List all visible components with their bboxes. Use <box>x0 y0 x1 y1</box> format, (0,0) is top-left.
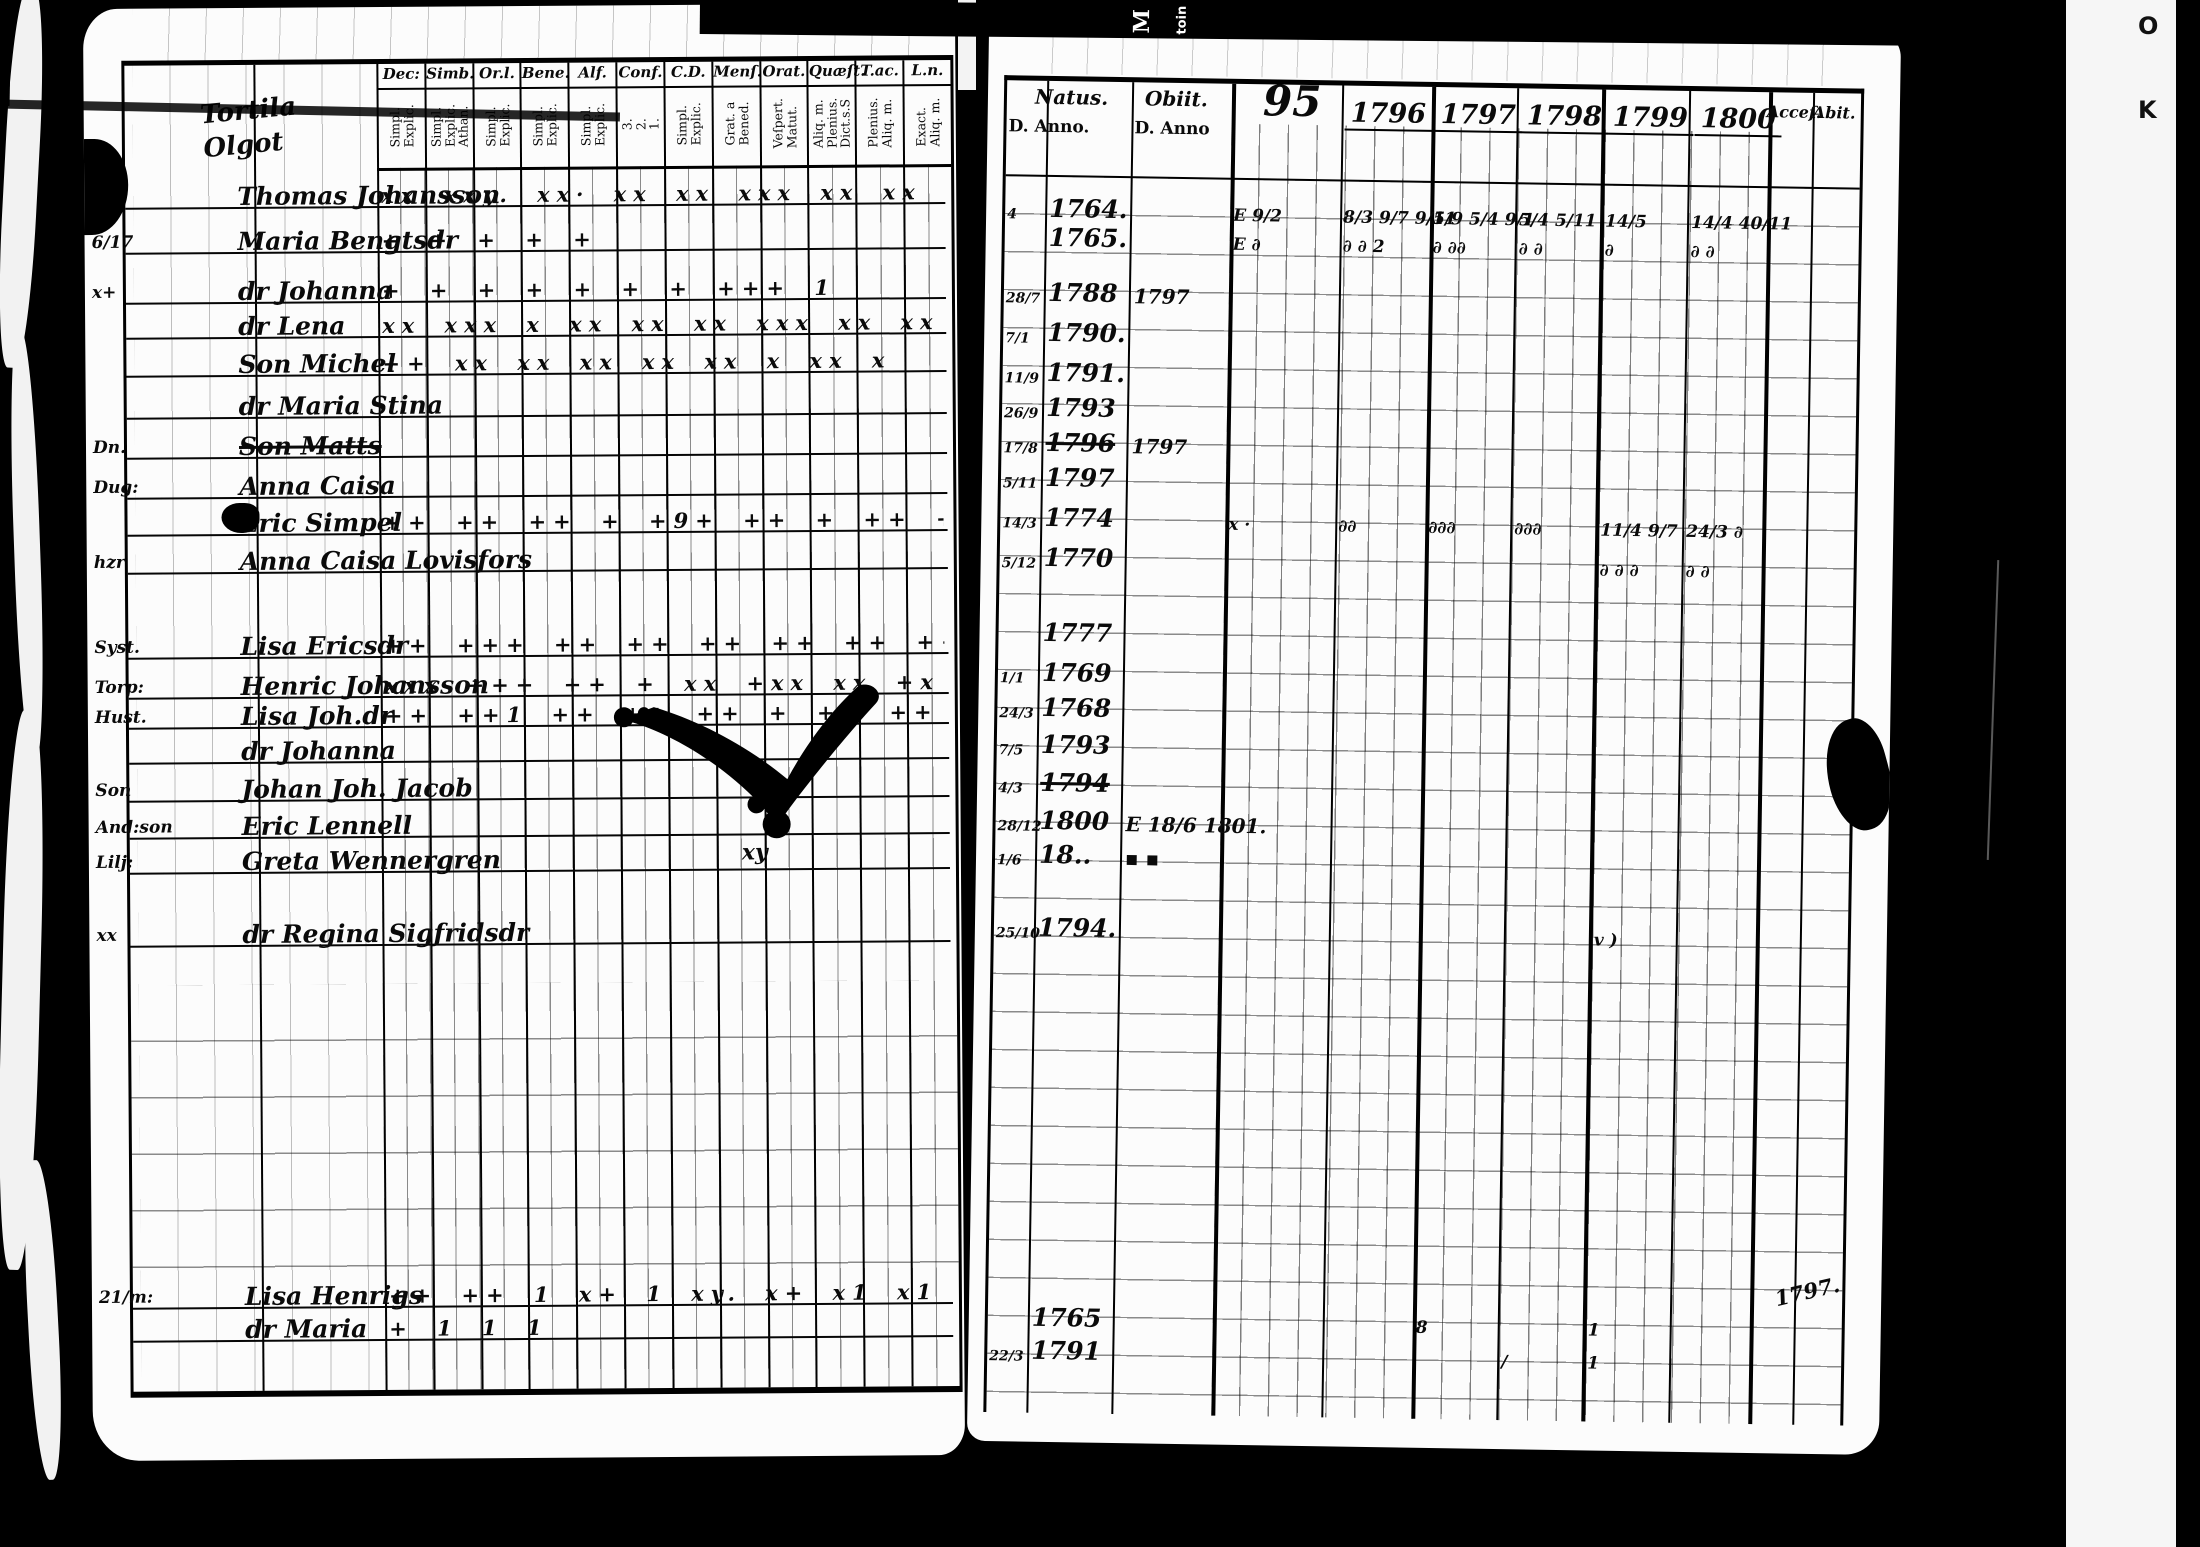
column-sublabels: Veſpert. Matut. <box>771 98 798 148</box>
column-label: C.D. <box>665 63 711 81</box>
birth-day: 11/9 <box>1004 370 1039 387</box>
examination-marks: + + + + + + + +++ 1 <box>382 274 942 303</box>
communion-1799: ∂ ∂ ∂ <box>1599 561 1638 582</box>
margin-annotation: xx <box>96 926 116 946</box>
margin-annotation: Son <box>95 781 131 801</box>
column-label: Bene. <box>522 64 568 82</box>
year-headers: 9517961797179817991800 <box>1006 80 1861 149</box>
communion-1797: ∂∂∂ <box>1428 518 1456 538</box>
column-label: T.ac. <box>857 61 903 79</box>
dates-table: Natus. Obiit. D. Anno. D. Anno 951796179… <box>983 75 1864 1425</box>
register-row: Thomas Johansson xx xxy. xx· xx xx xxx x… <box>125 172 945 210</box>
year-header: 1798 <box>1520 100 1608 134</box>
person-name: Lisa Ericsdr <box>240 631 408 661</box>
examination-marks: xx xxy. xx· xx xx xxx xx xx xx xy. xx xI <box>381 179 941 208</box>
death-note: 1797 <box>1134 284 1190 309</box>
birth-year: 1765 <box>1032 1303 1102 1333</box>
birth-year: 1777 <box>1042 618 1112 648</box>
communion-1796: ∂∂ <box>1338 516 1356 536</box>
person-name: Eric Simpel <box>239 508 402 538</box>
person-name: Lisa Joh.dr <box>241 701 393 731</box>
column-label: Simb. <box>426 64 472 82</box>
film-edge-strip: O K <box>2066 0 2176 1547</box>
birth-year: 1800 <box>1039 806 1109 836</box>
birth-year: 1794. <box>1038 913 1117 943</box>
death-note: E 18/6 1801. <box>1125 812 1266 838</box>
margin-annotation: Hust. <box>95 708 147 728</box>
death-note: ▪ ▪ <box>1125 846 1159 871</box>
birth-day: 7/5 <box>999 742 1024 758</box>
person-name: dr Regina Sigfridsdr <box>242 918 529 949</box>
examination-marks: ++ xx xx xx xx xx x xx x <box>382 347 942 376</box>
register-row: hzr Anna Caisa Lovisfors <box>128 537 948 575</box>
birth-day: 7/1 <box>1005 330 1030 346</box>
large-ink-checkmark-blot <box>608 665 919 867</box>
birth-day: 28/12 <box>997 818 1041 835</box>
right-page: Natus. Obiit. D. Anno. D. Anno 951796179… <box>967 17 1901 1455</box>
column-label: L.n. <box>904 61 950 79</box>
birth-year: 1791 <box>1031 1336 1101 1366</box>
register-row: 21/m: Lisa Henrigs ++ ++ 1 x+ 1 xy. x+ x… <box>133 1272 953 1310</box>
examination-marks: + + + + + <box>381 224 941 253</box>
person-name: Anna Caisa Lovisfors <box>240 545 532 576</box>
person-name: dr Lena <box>238 311 345 341</box>
examination-marks: xx xxx x xx xx xx xxx xx xx xx x <box>382 309 942 338</box>
left-page: Tortila Olgot Dec: Simpl. Explic. Simb. … <box>83 3 965 1461</box>
person-name: dr Johanna <box>238 276 393 306</box>
birth-day: 1/6 <box>997 852 1022 868</box>
edge-letter-o: O <box>2138 12 2158 40</box>
column-sublabels: Grat. a Bened. <box>723 101 750 145</box>
edge-letter-k: K <box>2138 96 2157 124</box>
year-header: 1797 <box>1434 99 1522 133</box>
communion-1795: E ∂ <box>1233 235 1261 255</box>
year-header: 95 <box>1257 76 1328 126</box>
column-label: Menſ. <box>713 62 759 80</box>
strip-text-fragment: toin <box>1175 6 1190 35</box>
person-name: Eric Lennell <box>242 811 413 841</box>
communion-1795: x · <box>1228 515 1250 535</box>
birth-day: 24/3 <box>999 705 1034 722</box>
person-name: dr Johanna <box>241 736 396 766</box>
birth-day: 5/12 <box>1002 555 1037 572</box>
communion-1798: ∂∂∂ <box>1514 519 1542 539</box>
birth-year: 1797 <box>1045 463 1115 493</box>
margin-annotation: Torp: <box>95 678 144 698</box>
birth-day: 4/3 <box>998 780 1023 796</box>
birth-year: 1774 <box>1044 503 1114 533</box>
empty-grid-ruling <box>131 980 959 1276</box>
register-row: Syst. Lisa Ericsdr ++ +++ ++ ++ ++ ++ ++… <box>128 622 948 660</box>
birth-year: 1793 <box>1041 730 1111 760</box>
examination-marks: ++ ++ ++ + +9+ ++ + ++ ++ + x +x xx <box>383 506 943 535</box>
person-name: Son Michel <box>238 349 396 379</box>
register-row: Son Michel ++ xx xx xx xx xx x xx x <box>126 340 946 378</box>
ink-bar-artifact <box>0 0 10 56</box>
communion-1799: 1 <box>1588 1320 1600 1340</box>
birth-year: 1770 <box>1044 543 1114 573</box>
margin-annotation: Lilj: <box>96 853 133 873</box>
communion-1799: 1 <box>1587 1353 1599 1373</box>
register-row: Dn. Son Matts <box>127 422 947 460</box>
birth-day: 14/3 <box>1002 515 1037 532</box>
communion-1799: v ) <box>1594 931 1618 951</box>
register-row: Dug: Anna Caisa <box>127 462 947 500</box>
birth-year: 1793 <box>1046 393 1116 423</box>
communion-1799: 11/4 9/7 <box>1600 521 1678 542</box>
film-edge-bar <box>2176 0 2200 1547</box>
register-row: xx dr Regina Sigfridsdr <box>130 910 950 948</box>
person-name: Greta Wennergren <box>242 845 501 876</box>
communion-1800: 24/3 ∂ <box>1686 522 1743 543</box>
margin-annotation: Syst. <box>94 638 140 658</box>
year-header: 1799 <box>1606 102 1694 136</box>
film-tear-streak <box>7 330 48 761</box>
person-name: dr Maria Stina <box>239 391 443 421</box>
column-sublabels: Simpl. Explic. <box>532 103 559 146</box>
column-sublabels: Simpl. Explic. <box>579 103 606 146</box>
abiit-header: Abit. <box>1813 103 1856 123</box>
birth-day: 22/3 <box>989 1348 1024 1365</box>
margin-annotation: x+ <box>92 283 117 303</box>
person-name: Johan Joh. Jacob <box>241 773 472 804</box>
margin-annotation: Dug: <box>93 478 138 498</box>
column-label: Dec: <box>378 65 424 83</box>
column-sublabels: 3. 2. 1. <box>621 118 662 130</box>
column-label: Orat. <box>761 62 807 80</box>
margin-annotation: And:son <box>96 817 173 838</box>
person-name: dr Maria <box>245 1314 367 1344</box>
communion-1796: ∂ ∂ 2 <box>1343 237 1385 258</box>
register-row: dr Lena xx xxx x xx xx xx xxx xx xx xx x <box>126 302 946 340</box>
margin-annotation: hzr <box>94 553 125 573</box>
birth-year: 18.. <box>1039 840 1092 870</box>
communion-1798: ∂ ∂ <box>1518 239 1542 259</box>
year-header: 1796 <box>1344 98 1432 132</box>
column-sublabels: Plenius. Aliq. m. <box>866 97 893 147</box>
birth-day: 28/7 <box>1006 290 1041 307</box>
communion-1797: ∂ ∂∂ <box>1433 238 1466 259</box>
birth-year: 1796 <box>1045 428 1115 458</box>
column-label: Or.l. <box>474 64 520 82</box>
column-sublabels: Aliq. m. Plenius. Dict.s.S <box>812 98 853 149</box>
birth-year: 1790. <box>1047 318 1126 348</box>
birth-year: 1768 <box>1041 693 1111 723</box>
scanned-register-spread: Tortila Olgot Dec: Simpl. Explic. Simb. … <box>0 0 2200 1547</box>
column-sublabels: Exact. Aliq. m. <box>914 98 941 147</box>
margin-annotation: 6/17 <box>92 233 134 253</box>
birth-year: 1791. <box>1046 358 1125 388</box>
register-row: x+ dr Johanna + + + + + + + +++ 1 <box>126 267 946 305</box>
birth-day: 25/10 <box>996 925 1040 942</box>
column-label: Quæſt. <box>809 62 855 80</box>
column-sublabels: Simpl. Explic. <box>675 102 702 145</box>
birth-year: 1788 <box>1048 278 1118 308</box>
column-label: Conf. <box>617 63 663 81</box>
person-name: Anna Caisa <box>239 471 396 501</box>
communion-1799: ∂ <box>1604 241 1613 261</box>
register-row: dr Maria Stina <box>127 382 947 420</box>
communion-1800: ∂ ∂ <box>1690 242 1714 262</box>
birth-day: 26/9 <box>1004 405 1039 422</box>
strip-text-fragment: M <box>1129 9 1155 34</box>
examination-marks: ++ +++ ++ ++ ++ ++ ++ ++ ++ + xx + +1 <box>384 629 944 658</box>
person-name: Son Matts <box>239 431 382 461</box>
film-tear-streak <box>20 1159 67 1480</box>
birth-day: 5/11 <box>1003 475 1038 492</box>
birth-day: 1/1 <box>1000 670 1025 686</box>
ink-blot <box>800 1468 872 1492</box>
register-row: 6/17 Maria Bengtsdr + + + + + <box>125 217 945 255</box>
column-label: Alf. <box>570 63 616 81</box>
margin-annotation: Dn. <box>93 438 126 458</box>
examination-marks: ++ ++ 1 x+ 1 xy. x+ x1 x1 x x <box>389 1279 949 1308</box>
register-row: dr Maria + 1 1 1 <box>133 1305 953 1343</box>
birth-year: 1765. <box>1049 223 1128 253</box>
communion-1798: / <box>1501 1352 1508 1372</box>
birth-year: 1769 <box>1042 658 1112 688</box>
communion-1797: 8 <box>1416 1318 1428 1338</box>
margin-annotation: 21/m: <box>99 1288 153 1308</box>
film-scratch <box>1987 560 1999 860</box>
ink-blot <box>221 503 259 533</box>
birth-year: 1794 <box>1040 768 1110 798</box>
examination-marks: + 1 1 1 <box>389 1312 949 1341</box>
birth-day: 17/8 <box>1003 440 1038 457</box>
communion-1800: ∂ ∂ <box>1685 562 1709 582</box>
death-note: 1797 <box>1131 434 1187 459</box>
